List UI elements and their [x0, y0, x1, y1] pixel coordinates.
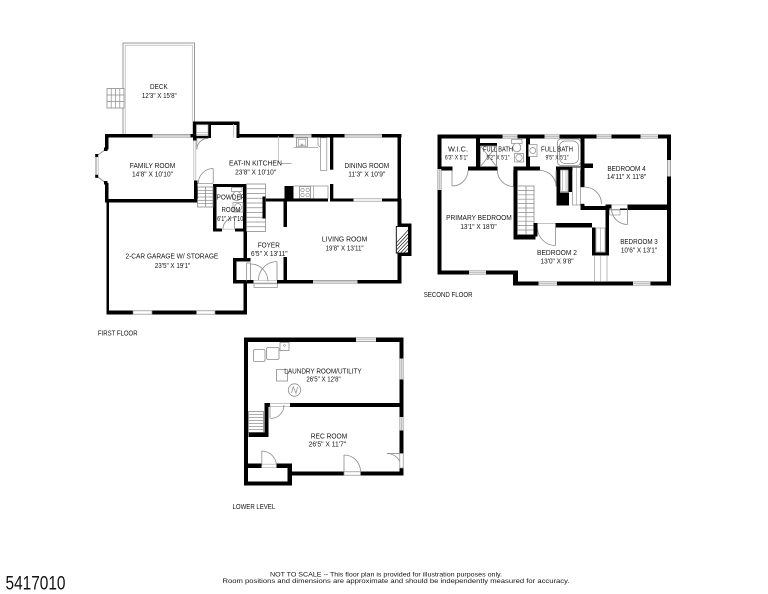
svg-text:PRIMARY BEDROOM: PRIMARY BEDROOM [446, 213, 512, 222]
svg-text:26'5" X 11'7": 26'5" X 11'7" [309, 442, 347, 449]
svg-text:6'5" X 13'11": 6'5" X 13'11" [251, 251, 288, 258]
svg-text:BEDROOM 2: BEDROOM 2 [537, 248, 577, 257]
svg-text:FIRST FLOOR: FIRST FLOOR [98, 328, 138, 337]
svg-text:11'3" X 10'9": 11'3" X 10'9" [348, 172, 385, 179]
svg-text:POWDER: POWDER [217, 193, 246, 202]
svg-text:LIVING ROOM: LIVING ROOM [322, 235, 367, 244]
svg-text:SECOND FLOOR: SECOND FLOOR [424, 290, 473, 299]
svg-text:9'5" X 5'1": 9'5" X 5'1" [546, 155, 569, 162]
svg-text:23'8" X 10'10": 23'8" X 10'10" [235, 169, 276, 176]
svg-text:DINING ROOM: DINING ROOM [344, 161, 389, 170]
svg-text:14'8" X 10'10": 14'8" X 10'10" [132, 172, 173, 179]
svg-text:13'1" X 18'0": 13'1" X 18'0" [460, 224, 497, 231]
svg-text:5'2" X 5'1": 5'2" X 5'1" [487, 155, 510, 162]
svg-text:26'5" X 12'8": 26'5" X 12'8" [306, 376, 341, 383]
svg-text:EAT-IN KITCHEN: EAT-IN KITCHEN [229, 159, 282, 168]
svg-text:Room positions and dimensions: Room positions and dimensions are approx… [223, 578, 570, 585]
svg-text:ROOM: ROOM [222, 205, 241, 214]
svg-text:FOYER: FOYER [258, 240, 280, 249]
svg-text:6'1" X 7'10": 6'1" X 7'10" [217, 216, 246, 223]
svg-text:5417010: 5417010 [6, 572, 66, 594]
svg-text:13'0" X 9'8": 13'0" X 9'8" [541, 258, 574, 265]
svg-text:2-CAR GARAGE W/ STORAGE: 2-CAR GARAGE W/ STORAGE [125, 251, 218, 260]
svg-text:19'8" X 13'11": 19'8" X 13'11" [326, 245, 364, 252]
svg-text:FAMILY ROOM: FAMILY ROOM [130, 161, 176, 170]
svg-text:6'3" X 5'1": 6'3" X 5'1" [445, 155, 469, 162]
svg-text:14'11" X 11'8": 14'11" X 11'8" [607, 174, 647, 181]
svg-text:DECK: DECK [150, 82, 168, 91]
svg-text:LAUNDRY ROOM/UTILITY: LAUNDRY ROOM/UTILITY [284, 367, 362, 376]
svg-text:10'6" X 13'1": 10'6" X 13'1" [621, 247, 658, 254]
svg-text:FULL BATH: FULL BATH [483, 146, 513, 153]
svg-text:BEDROOM 3: BEDROOM 3 [620, 237, 658, 246]
svg-text:12'3" X 15'8": 12'3" X 15'8" [142, 93, 177, 100]
svg-text:LOWER LEVEL: LOWER LEVEL [233, 502, 276, 511]
svg-text:FULL BATH: FULL BATH [541, 146, 573, 153]
svg-text:REC ROOM: REC ROOM [311, 431, 348, 440]
svg-text:23'5" X 19'1": 23'5" X 19'1" [155, 263, 191, 270]
svg-text:W.I.C.: W.I.C. [448, 146, 468, 153]
svg-text:BEDROOM 4: BEDROOM 4 [607, 164, 645, 173]
